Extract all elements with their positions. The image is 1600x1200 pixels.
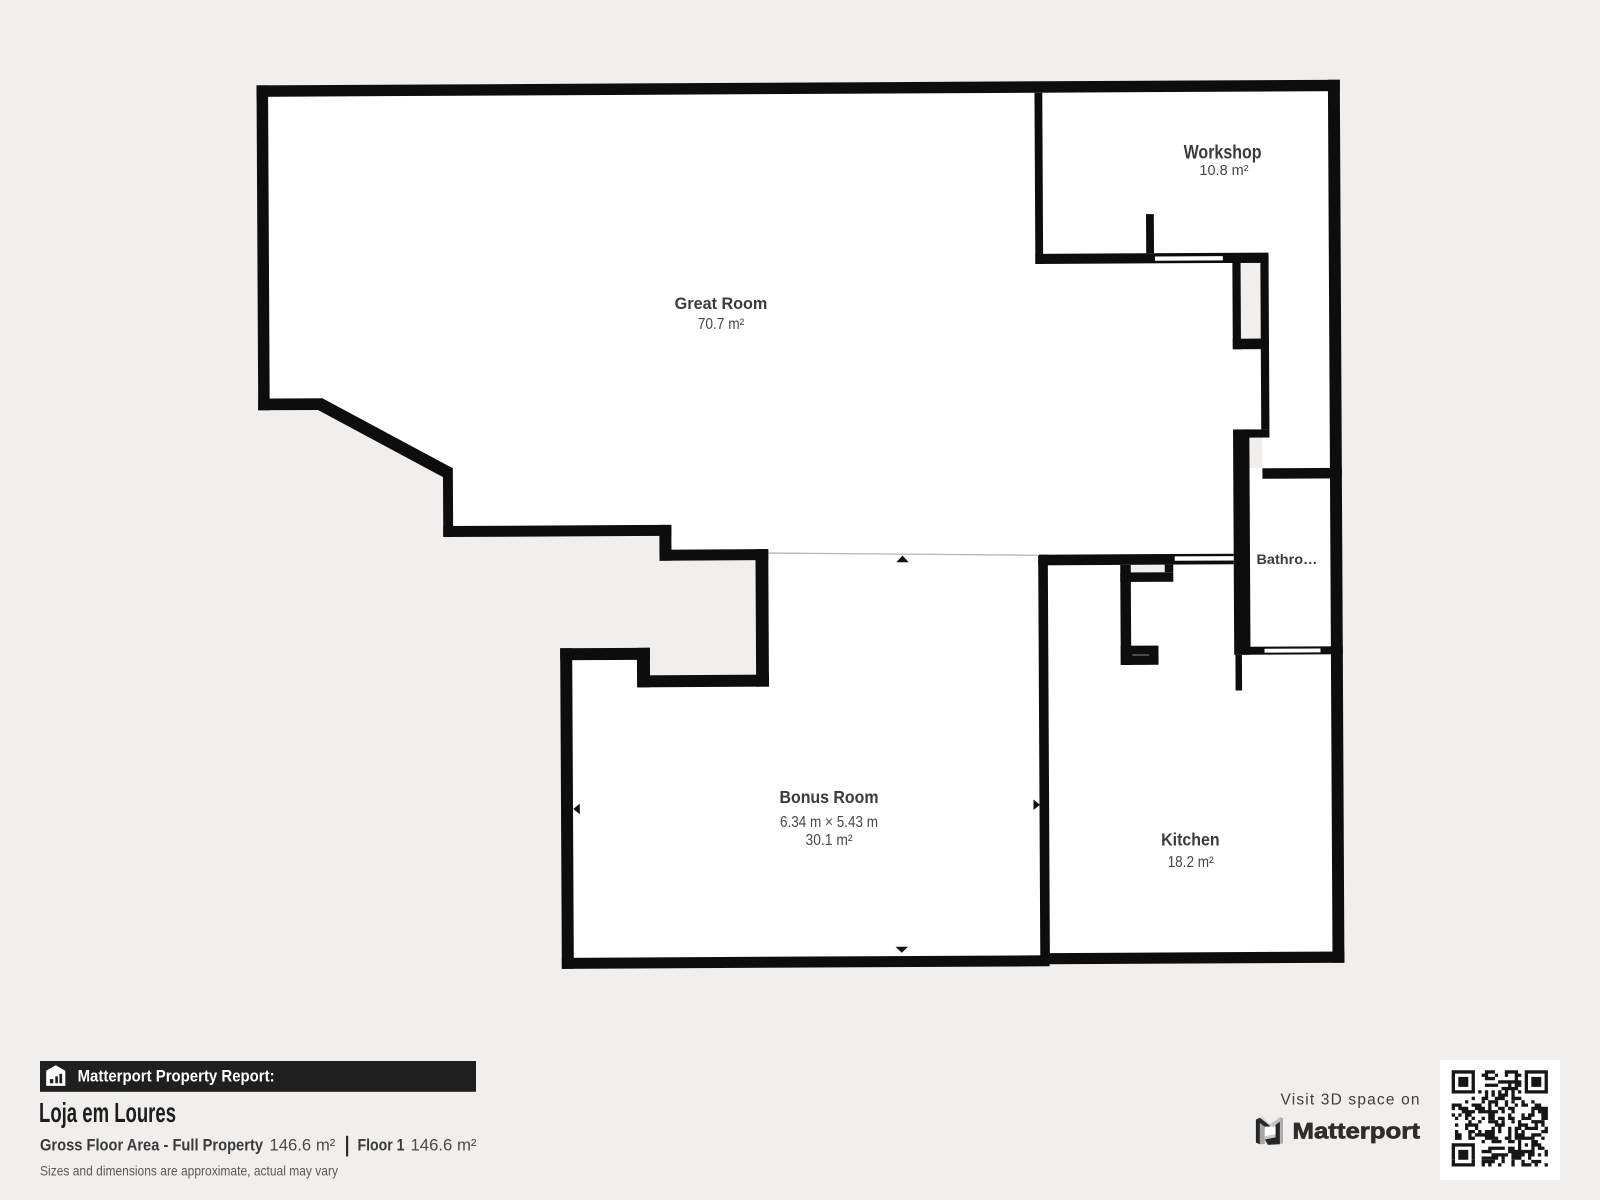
svg-text:Great Room: Great Room [675,295,768,313]
svg-text:Workshop: Workshop [1184,142,1262,164]
svg-text:6.34 m × 5.43 m: 6.34 m × 5.43 m [780,814,878,831]
svg-text:Bathro…: Bathro… [1257,552,1318,567]
svg-text:Matterport Property Report:: Matterport Property Report: [78,1067,275,1086]
svg-text:Loja em Loures: Loja em Loures [39,1097,176,1128]
svg-text:Kitchen: Kitchen [1161,830,1220,850]
svg-text:Matterport: Matterport [1293,1118,1421,1143]
svg-text:10.8 m²: 10.8 m² [1199,163,1248,179]
svg-text:Bonus Room: Bonus Room [780,787,879,807]
svg-text:30.1 m²: 30.1 m² [806,832,853,849]
svg-text:Gross Floor Area - Full Proper: Gross Floor Area - Full Property146.6 m²… [40,1137,477,1155]
svg-text:Sizes and dimensions are appro: Sizes and dimensions are approximate, ac… [40,1163,338,1179]
svg-text:18.2 m²: 18.2 m² [1168,854,1214,871]
svg-text:Visit 3D space on: Visit 3D space on [1281,1091,1420,1108]
svg-text:70.7 m²: 70.7 m² [698,316,745,333]
